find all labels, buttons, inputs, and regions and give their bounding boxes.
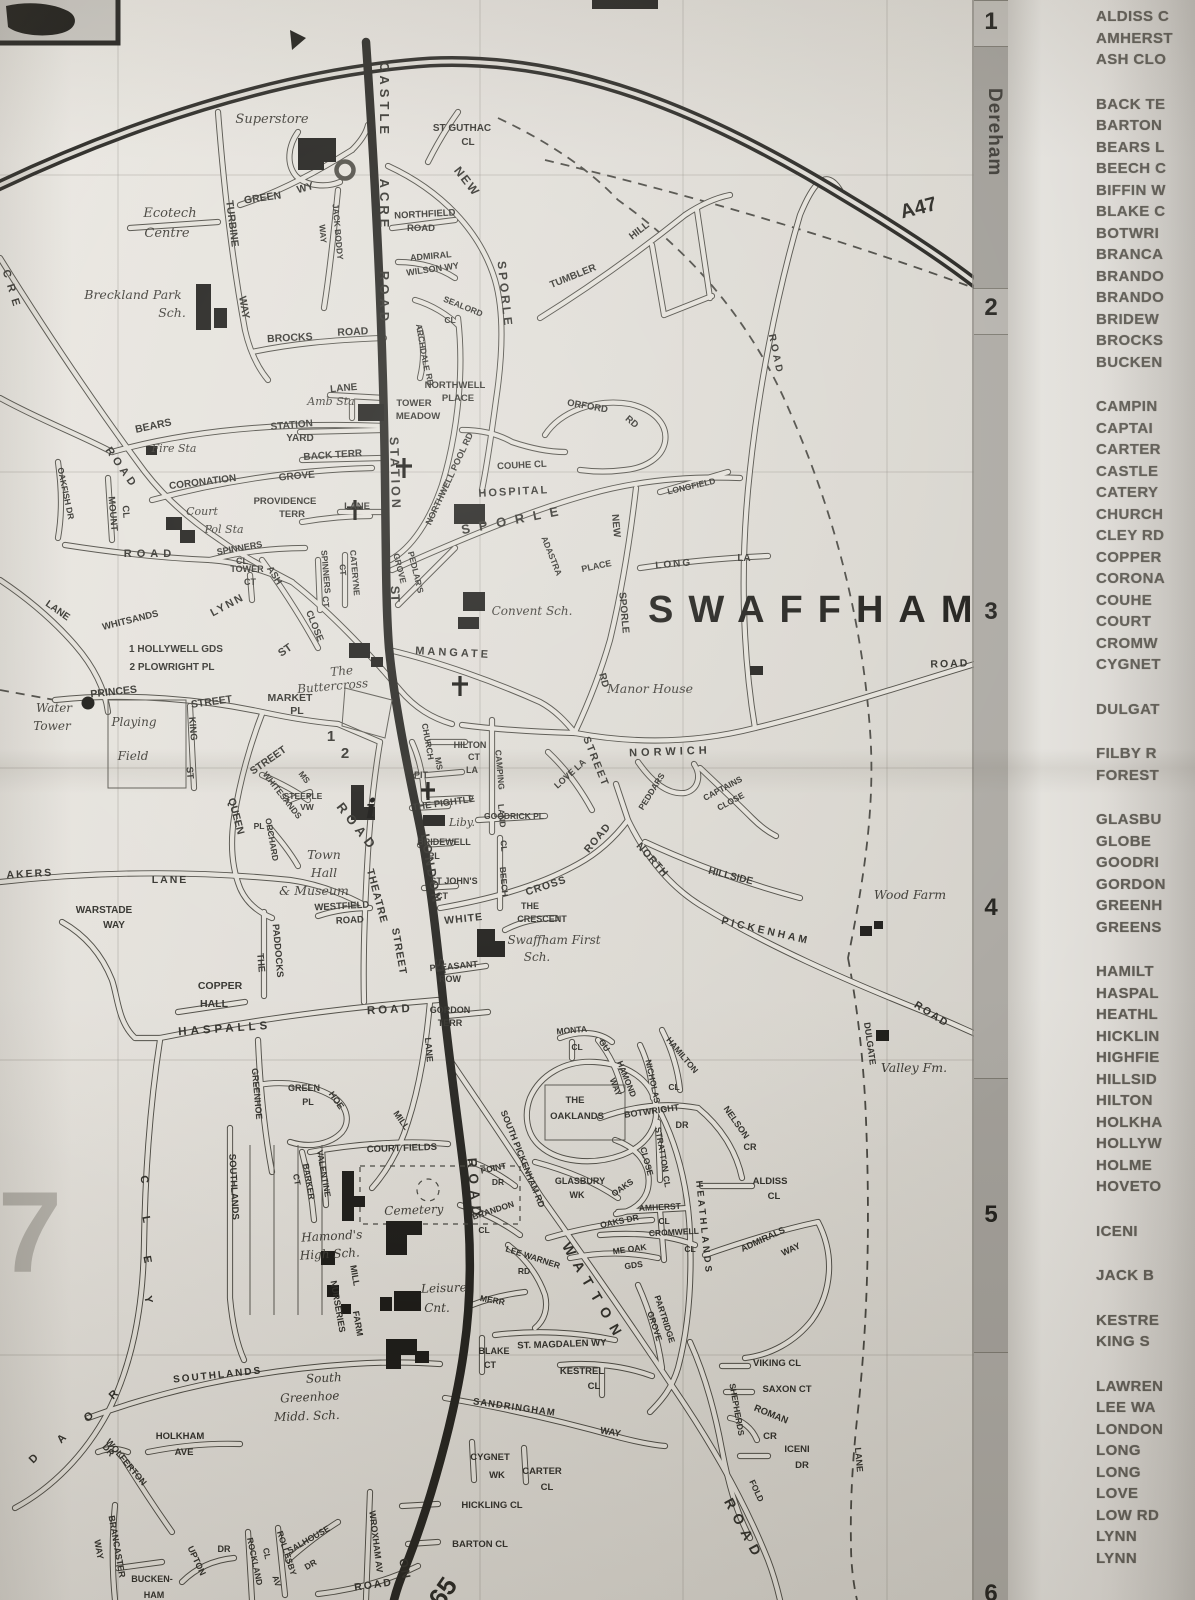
street-label: AVE xyxy=(175,1447,194,1458)
road-casings xyxy=(0,112,974,1600)
street-label: CL xyxy=(444,315,455,325)
street-label: CAMPING xyxy=(493,749,506,790)
street-label: Water xyxy=(36,701,73,715)
grid-edge-destination: Dereham xyxy=(977,88,1005,288)
street-label: MILL xyxy=(348,1264,362,1287)
street-label: WHITE xyxy=(444,911,484,927)
street-label: OAKLANDS xyxy=(550,1111,604,1122)
index-entry: BRIDEW xyxy=(1096,309,1195,331)
street-label: STEEPLE xyxy=(284,791,323,801)
street-label: ROAD xyxy=(930,657,969,670)
street-label: ROAD xyxy=(367,1003,413,1017)
street-label: PL xyxy=(290,705,304,717)
street-label: ACRE xyxy=(377,179,392,232)
street-label: CL xyxy=(571,1042,582,1052)
street-label: PADDOCKS xyxy=(270,924,286,978)
street-label: CT xyxy=(291,1173,303,1187)
street-label: ROW xyxy=(439,974,462,984)
index-entry: CATERY xyxy=(1096,482,1195,504)
index-group: KESTREKING S xyxy=(1096,1310,1195,1353)
grid-segment xyxy=(974,1352,1008,1600)
index-group: ICENI xyxy=(1096,1221,1195,1243)
street-label: ST xyxy=(183,766,195,779)
index-entry: CORONA xyxy=(1096,568,1195,590)
street-label: HICKLING CL xyxy=(461,1500,522,1511)
street-label: THE xyxy=(254,953,267,973)
street-label: CL xyxy=(461,137,474,148)
street-label: DR xyxy=(492,1177,504,1187)
street-label: CR xyxy=(744,1142,757,1152)
index-entry: DULGAT xyxy=(1096,699,1195,721)
roundabout xyxy=(337,162,354,179)
street-label: CL xyxy=(684,1244,695,1254)
street-label: QUEEN xyxy=(225,797,246,836)
street-label: TERR xyxy=(279,509,305,520)
street-index-list: ALDISS CAMHERSTASH CLOBACK TEBARTONBEARS… xyxy=(1096,6,1195,1592)
index-entry: HILLSID xyxy=(1096,1069,1195,1091)
street-label: Liby. xyxy=(448,816,475,829)
street-label: CT xyxy=(484,1360,496,1370)
street-label: PL xyxy=(254,821,265,831)
street-label: WAY xyxy=(103,920,125,931)
index-entry: CASTLE xyxy=(1096,461,1195,483)
boundary-paths xyxy=(0,118,974,1600)
street-label: Wood Farm xyxy=(874,887,946,902)
street-label: DULGATE xyxy=(862,1022,878,1066)
street-label: SANDRINGHAM xyxy=(472,1396,556,1418)
street-label: Swaffham First xyxy=(507,933,600,947)
grid-segment xyxy=(974,334,1008,1078)
street-label: ST. MAGDALEN WY xyxy=(517,1337,607,1351)
street-label: Y xyxy=(141,1295,154,1305)
street-label: LANE xyxy=(152,874,189,886)
street-label: LYNN xyxy=(208,591,246,619)
street-label: WAY xyxy=(317,224,329,244)
grid-reference-strip: Dereham 123456 xyxy=(974,0,1008,1600)
street-label: Centre xyxy=(144,226,189,241)
index-entry: COPPER xyxy=(1096,547,1195,569)
street-label: Greenhoe xyxy=(280,1388,340,1405)
street-label: & Museum xyxy=(279,883,349,898)
street-label: SWAFFHAM xyxy=(648,589,974,631)
inset-corner xyxy=(0,0,118,43)
street-label: CT xyxy=(321,596,332,609)
street-label: CL xyxy=(499,840,510,852)
street-label: ST xyxy=(276,641,295,659)
street-label: AKERS xyxy=(6,867,53,881)
index-entry: LYNN xyxy=(1096,1526,1195,1548)
index-group: GLASBUGLOBEGOODRIGORDONGREENHGREENS xyxy=(1096,809,1195,938)
index-entry: BEARS L xyxy=(1096,137,1195,159)
street-label: STREET xyxy=(389,927,409,976)
street-label: WAY xyxy=(92,1539,105,1560)
street-label: HASPALLS xyxy=(178,1020,272,1038)
index-entry: BEECH C xyxy=(1096,158,1195,180)
street-label: LANE xyxy=(423,1037,435,1062)
index-entry: HEATHL xyxy=(1096,1004,1195,1026)
map-canvas: SuperstoreEcotechCentreBreckland ParkSch… xyxy=(0,0,974,1600)
street-label: HILTON xyxy=(454,740,487,750)
index-group: DULGAT xyxy=(1096,699,1195,721)
index-entry: LAWREN xyxy=(1096,1376,1195,1398)
street-label: THE xyxy=(566,1095,585,1106)
street-label: O xyxy=(82,1409,97,1424)
street-label: WK xyxy=(570,1190,585,1200)
street-label: Playing xyxy=(110,715,156,729)
street-label: ADASTRA xyxy=(539,535,564,577)
grid-number: 2 xyxy=(974,294,1008,322)
street-label: WAY xyxy=(780,1241,802,1258)
street-label: WK xyxy=(489,1470,505,1481)
street-label: ST GUTHAC xyxy=(433,123,491,134)
index-entry: HOVETO xyxy=(1096,1176,1195,1198)
street-label: COUHE CL xyxy=(497,459,547,473)
street-label: i xyxy=(366,794,376,825)
index-page: ALDISS CAMHERSTASH CLOBACK TEBARTONBEARS… xyxy=(1008,0,1195,1600)
index-entry: HOLKHA xyxy=(1096,1112,1195,1134)
street-label: CT xyxy=(244,577,256,587)
index-entry: CAPTAI xyxy=(1096,418,1195,440)
street-label: VW xyxy=(300,802,315,812)
street-label: SAXON CT xyxy=(762,1384,811,1395)
index-entry: CROMW xyxy=(1096,633,1195,655)
index-entry: LONDON xyxy=(1096,1419,1195,1441)
street-label: NEW xyxy=(609,514,622,539)
street-label: CL xyxy=(661,1175,673,1188)
street-label: Fire Sta xyxy=(151,442,197,455)
index-entry: KING S xyxy=(1096,1331,1195,1353)
index-group: CAMPINCAPTAICARTERCASTLECATERYCHURCHCLEY… xyxy=(1096,396,1195,676)
street-label: COURT FIELDS xyxy=(367,1142,438,1155)
street-label: LONG xyxy=(655,557,693,571)
street-label: CT xyxy=(468,752,480,762)
street-label: 7 xyxy=(0,1169,62,1297)
index-entry: BRANCA xyxy=(1096,244,1195,266)
street-label: 1 HOLLYWELL GDS xyxy=(129,644,223,655)
street-label: PROVIDENCE xyxy=(254,496,317,507)
street-label: ROAD xyxy=(337,325,369,339)
street-label: Buttercross xyxy=(296,676,369,696)
index-group: JACK B xyxy=(1096,1265,1195,1287)
street-label: SOUTH PICKENHAM RD xyxy=(499,1109,547,1210)
street-label: DR xyxy=(218,1544,231,1554)
street-label: HOLKHAM xyxy=(156,1431,205,1442)
street-label: HALL xyxy=(200,998,229,1010)
street-label: LANE xyxy=(853,1447,865,1472)
street-label: Breckland Park xyxy=(83,287,181,302)
street-label: WAY xyxy=(599,1425,622,1440)
index-entry: COUHE xyxy=(1096,590,1195,612)
street-label: Pol Sta xyxy=(203,523,243,536)
street-label: STATION xyxy=(387,437,404,511)
street-label: Ecotech xyxy=(142,206,196,221)
street-label: A xyxy=(55,1432,69,1446)
street-label: Cnt. xyxy=(424,1301,450,1315)
index-entry: LOVE xyxy=(1096,1483,1195,1505)
index-entry: CAMPIN xyxy=(1096,396,1195,418)
street-label: Sch. xyxy=(524,950,550,964)
street-label: MS xyxy=(296,769,312,785)
street-label: PIT xyxy=(414,770,429,780)
street-label: THE xyxy=(521,901,539,911)
index-entry: ICENI xyxy=(1096,1221,1195,1243)
street-label: Amb Sta xyxy=(306,395,354,408)
street-label: Hamond's xyxy=(300,1227,363,1244)
street-label: GLASBURY xyxy=(555,1176,605,1186)
street-label: Superstore xyxy=(235,112,308,127)
index-entry: BIFFIN W xyxy=(1096,180,1195,202)
street-label: GDS xyxy=(624,1259,644,1272)
index-entry: LOW RD xyxy=(1096,1505,1195,1527)
index-entry: BROCKS xyxy=(1096,330,1195,352)
street-label: CL xyxy=(768,1191,781,1202)
street-label: BARTON CL xyxy=(452,1539,508,1550)
street-label: HOSPITAL xyxy=(478,484,549,500)
index-entry: ALDISS C xyxy=(1096,6,1195,28)
street-label: BROCKS xyxy=(267,331,313,345)
street-label: LA xyxy=(737,553,750,564)
street-label: 2 xyxy=(341,745,349,762)
street-label: Manor House xyxy=(606,681,693,696)
street-label: CRESCENT xyxy=(517,914,567,924)
street-label: 2 PLOWRIGHT PL xyxy=(130,662,215,673)
street-label: MOUNT xyxy=(105,496,119,532)
street-label: NEW xyxy=(451,164,483,199)
street-label: TOWER xyxy=(230,564,264,574)
street-label: CR xyxy=(763,1431,777,1442)
street-label: CASTLE xyxy=(377,62,392,138)
street-label: High Sch. xyxy=(298,1245,360,1262)
index-entry: HICKLIN xyxy=(1096,1026,1195,1048)
street-label: ROAD xyxy=(407,223,435,234)
index-entry: LONG xyxy=(1096,1462,1195,1484)
index-entry: LEE WA xyxy=(1096,1397,1195,1419)
street-label: VIKING CL xyxy=(753,1358,801,1369)
index-entry: CLEY RD xyxy=(1096,525,1195,547)
index-entry: BARTON xyxy=(1096,115,1195,137)
index-entry: BUCKEN xyxy=(1096,352,1195,374)
street-label: GOODRICK PL xyxy=(484,811,544,821)
index-entry: FOREST xyxy=(1096,765,1195,787)
street-label: Convent Sch. xyxy=(492,604,573,618)
street-label: ALDISS xyxy=(753,1176,788,1187)
street-label: Hall xyxy=(310,865,337,880)
street-label: PL xyxy=(302,1097,314,1107)
index-entry: BOTWRI xyxy=(1096,223,1195,245)
street-label: Sch. xyxy=(158,305,186,320)
street-label: SALHOUSE xyxy=(286,1523,332,1555)
street-label: TERR xyxy=(438,1018,463,1028)
road-fills xyxy=(0,112,974,1600)
street-label: CYGNET xyxy=(470,1452,510,1463)
index-entry: CARTER xyxy=(1096,439,1195,461)
street-label: CL xyxy=(658,1216,669,1226)
index-entry: BRANDO xyxy=(1096,287,1195,309)
index-entry: COURT xyxy=(1096,611,1195,633)
grid-number: 1 xyxy=(974,8,1008,36)
street-label: CL xyxy=(261,1547,273,1560)
street-label: L xyxy=(139,1215,152,1224)
street-label: Midd. Sch. xyxy=(273,1408,340,1424)
index-entry: CHURCH xyxy=(1096,504,1195,526)
street-label: CATERYNE xyxy=(348,549,362,596)
index-group: HAMILTHASPALHEATHLHICKLINHIGHFIEHILLSIDH… xyxy=(1096,961,1195,1198)
street-label: TOWER xyxy=(396,398,431,409)
index-entry: LYNN xyxy=(1096,1548,1195,1570)
street-label: VALENTINE xyxy=(315,1149,333,1198)
grid-number: 4 xyxy=(974,894,1008,922)
street-label: FARM xyxy=(351,1310,365,1337)
index-entry: GREENS xyxy=(1096,917,1195,939)
street-label: NORWICH xyxy=(629,745,711,760)
street-label: ROAD xyxy=(353,1576,393,1593)
index-entry: ASH CLO xyxy=(1096,49,1195,71)
index-entry: CYGNET xyxy=(1096,654,1195,676)
street-label: DR xyxy=(303,1557,319,1572)
index-entry: FILBY R xyxy=(1096,743,1195,765)
street-label: KESTREL xyxy=(560,1366,605,1377)
street-label: OAKS xyxy=(609,1176,635,1198)
street-label: 1 xyxy=(327,728,335,745)
index-entry: HOLME xyxy=(1096,1155,1195,1177)
street-label: Cemetery xyxy=(384,1202,444,1218)
index-entry: HILTON xyxy=(1096,1090,1195,1112)
street-label: CT xyxy=(338,564,349,577)
street-label: E xyxy=(140,1255,153,1264)
street-label: ADMIRAL xyxy=(410,249,453,263)
street-label: CL xyxy=(668,1082,679,1092)
index-entry: AMHERST xyxy=(1096,28,1195,50)
street-label: ROAD xyxy=(912,999,951,1030)
street-label: Tower xyxy=(33,719,72,733)
index-entry: GREENH xyxy=(1096,895,1195,917)
index-entry: HOLLYW xyxy=(1096,1133,1195,1155)
street-label: Field xyxy=(117,749,149,763)
index-entry: GLASBU xyxy=(1096,809,1195,831)
index-entry: GOODRI xyxy=(1096,852,1195,874)
street-label: WHITSANDS xyxy=(101,608,159,633)
street-label: RD xyxy=(623,413,641,430)
street-label: MS xyxy=(433,756,445,771)
index-entry: JACK B xyxy=(1096,1265,1195,1287)
street-label: GORDON xyxy=(430,1005,471,1015)
street-label: South xyxy=(306,1370,342,1386)
street-label: ROAD xyxy=(124,548,176,560)
index-entry: LONG xyxy=(1096,1440,1195,1462)
street-label: CL xyxy=(119,505,131,519)
street-label: PLACE xyxy=(442,393,474,404)
route-arrow-icon xyxy=(290,30,306,50)
index-entry: HASPAL xyxy=(1096,983,1195,1005)
street-label: HAM xyxy=(144,1590,165,1600)
grid-number: 3 xyxy=(974,598,1008,626)
street-label: D xyxy=(27,1452,41,1466)
street-label: DR xyxy=(795,1460,809,1471)
street-label: CHURCH xyxy=(420,722,436,760)
street-label: ROAD xyxy=(377,271,392,325)
street-label: LANE xyxy=(330,382,358,395)
street-map: SuperstoreEcotechCentreBreckland ParkSch… xyxy=(0,0,974,1600)
grid-number: 5 xyxy=(974,1201,1008,1229)
street-label: BUCKEN- xyxy=(131,1574,173,1584)
street-label: CARTER xyxy=(522,1466,562,1477)
index-group: FILBY RFOREST xyxy=(1096,743,1195,786)
street-label: COPPER xyxy=(198,980,243,992)
street-label: GREEN xyxy=(243,189,282,206)
map-page: SuperstoreEcotechCentreBreckland ParkSch… xyxy=(0,0,1195,1600)
index-group: BACK TEBARTONBEARS LBEECH CBIFFIN WBLAKE… xyxy=(1096,94,1195,374)
index-entry: HIGHFIE xyxy=(1096,1047,1195,1069)
street-label: CL xyxy=(541,1482,554,1493)
street-label: CL xyxy=(478,1225,489,1235)
street-label: ST xyxy=(388,586,403,603)
street-label: PLACE xyxy=(580,558,612,574)
index-entry: BLAKE C xyxy=(1096,201,1195,223)
index-group: LAWRENLEE WALONDONLONGLONGLOVELOW RDLYNN… xyxy=(1096,1376,1195,1570)
index-entry: HAMILT xyxy=(1096,961,1195,983)
street-label: LA xyxy=(466,765,478,775)
index-group: ALDISS CAMHERSTASH CLO xyxy=(1096,6,1195,71)
index-entry: GORDON xyxy=(1096,874,1195,896)
street-label: YARD xyxy=(286,433,313,444)
street-label: GROVE xyxy=(278,469,315,483)
index-entry: BACK TE xyxy=(1096,94,1195,116)
street-label: 65 xyxy=(422,1571,463,1600)
street-label: ICENI xyxy=(784,1444,809,1455)
street-label: HILLSIDE xyxy=(707,866,754,888)
street-label: SPORLE xyxy=(616,592,631,634)
street-label: MEADOW xyxy=(396,411,440,422)
grid-number: 6 xyxy=(974,1580,1008,1600)
street-label: CL xyxy=(588,1381,601,1392)
street-label: WESTFIELD xyxy=(314,900,370,914)
street-label: Town xyxy=(307,847,341,862)
index-entry: GLOBE xyxy=(1096,831,1195,853)
index-entry: BRANDO xyxy=(1096,266,1195,288)
street-label: LANE xyxy=(344,501,370,512)
street-label: A47 xyxy=(898,193,939,223)
street-label: Court xyxy=(186,505,218,518)
street-label: BLAKE xyxy=(479,1346,510,1356)
street-label: ROMAN xyxy=(752,1403,790,1427)
street-label: FOLD xyxy=(747,1478,766,1503)
street-label: BEARS xyxy=(134,416,172,435)
street-label: ARCHDALE xyxy=(414,323,432,372)
street-label: KING xyxy=(186,716,199,741)
street-label: WARSTADE xyxy=(76,905,133,916)
street-label: GREEN xyxy=(288,1083,320,1093)
street-label: ROAD xyxy=(336,914,365,926)
street-label: NORTHWELL xyxy=(425,380,486,391)
index-entry: KESTRE xyxy=(1096,1310,1195,1332)
street-label: RD xyxy=(518,1266,530,1276)
street-labels: SuperstoreEcotechCentreBreckland ParkSch… xyxy=(0,62,974,1600)
street-label: Leisure xyxy=(420,1280,467,1296)
street-label: WAY xyxy=(236,295,252,320)
street-label: DR xyxy=(676,1120,689,1130)
street-label: Valley Fm. xyxy=(881,1060,947,1075)
